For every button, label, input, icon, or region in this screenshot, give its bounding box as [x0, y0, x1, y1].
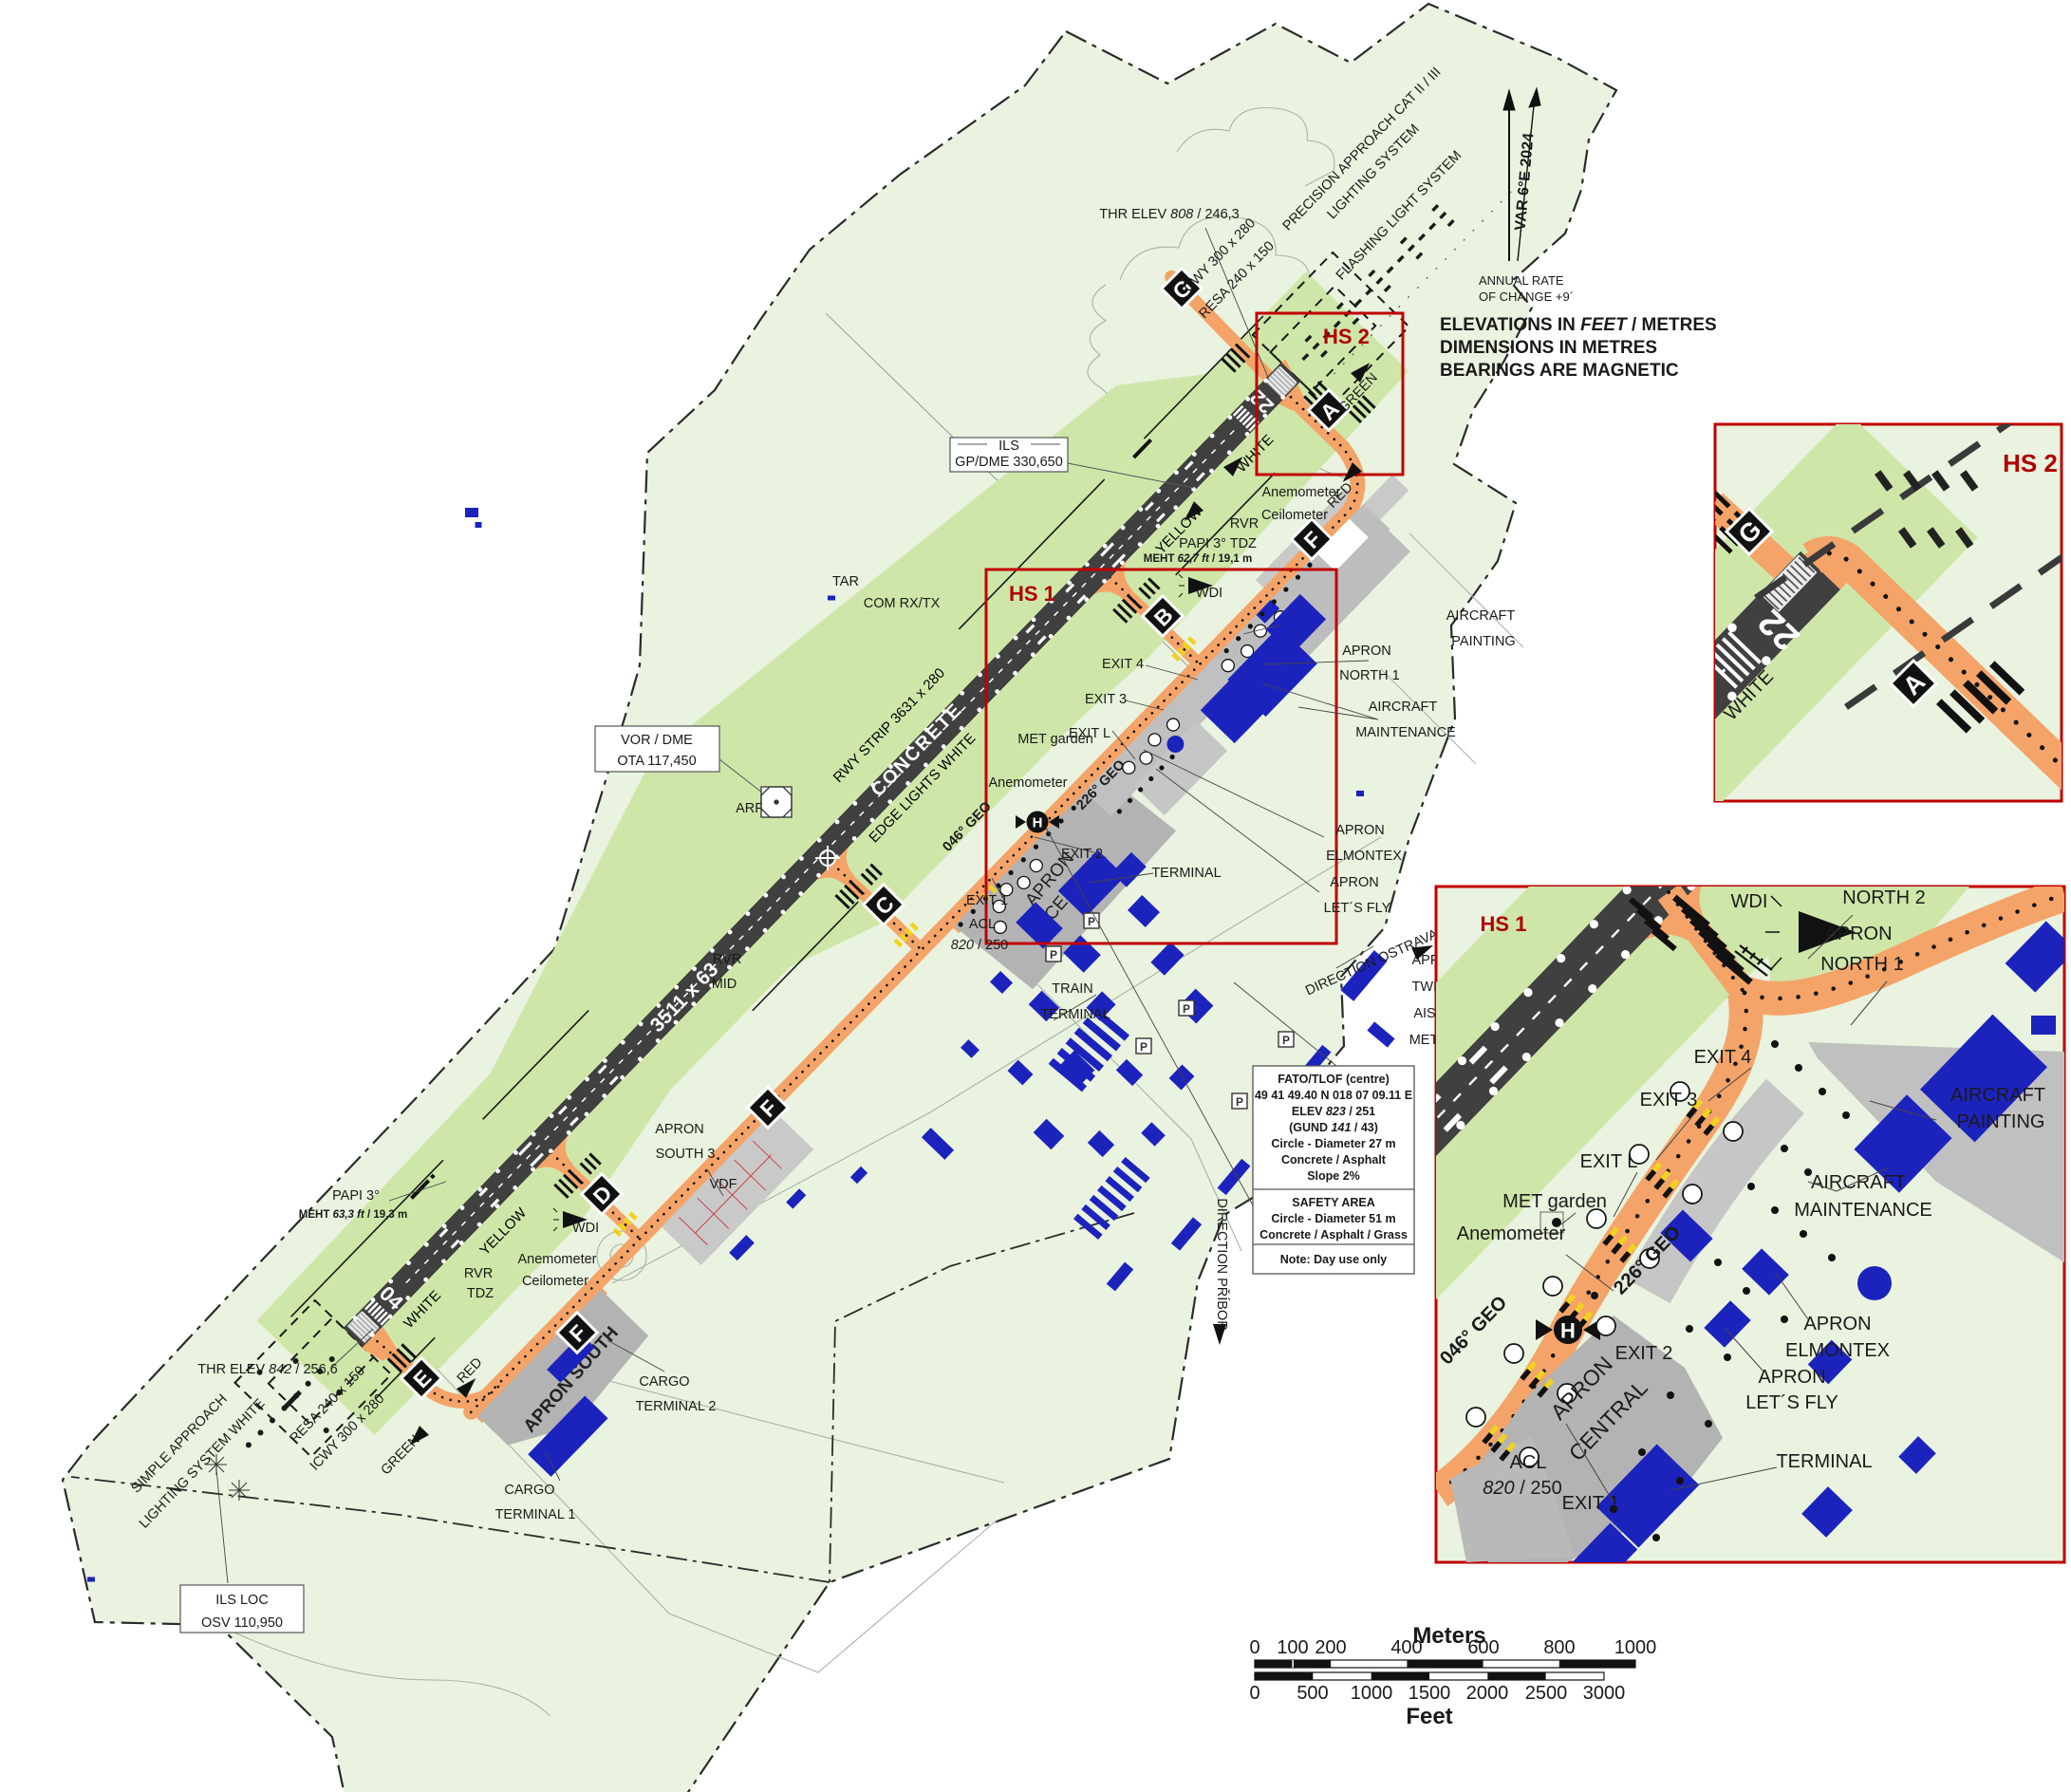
- svg-text:820 / 250: 820 / 250: [951, 938, 1008, 953]
- svg-text:APRON: APRON: [655, 1122, 704, 1137]
- svg-text:Ceilometer: Ceilometer: [1261, 508, 1328, 523]
- svg-text:MEHT 63,3 ft / 19,3 m: MEHT 63,3 ft / 19,3 m: [299, 1209, 407, 1221]
- svg-text:P: P: [1088, 915, 1095, 928]
- svg-text:LET´S FLY: LET´S FLY: [1745, 1392, 1838, 1413]
- svg-text:P: P: [1140, 1040, 1147, 1054]
- svg-text:MAINTENANCE: MAINTENANCE: [1355, 725, 1456, 740]
- svg-text:(GUND 141 / 43): (GUND 141 / 43): [1289, 1121, 1378, 1134]
- svg-text:RVR: RVR: [464, 1266, 493, 1281]
- svg-text:PAPI 3°: PAPI 3°: [332, 1188, 380, 1204]
- svg-text:600: 600: [1467, 1637, 1499, 1658]
- svg-text:TERMINAL: TERMINAL: [1151, 866, 1221, 881]
- svg-text:OTA 117,450: OTA 117,450: [617, 754, 696, 769]
- svg-text:0: 0: [1249, 1683, 1259, 1704]
- svg-text:MAINTENANCE: MAINTENANCE: [1794, 1200, 1932, 1221]
- svg-text:Feet: Feet: [1406, 1704, 1452, 1729]
- svg-text:EXIT 1: EXIT 1: [966, 893, 1008, 908]
- svg-text:TAR: TAR: [832, 574, 859, 589]
- svg-text:WDI: WDI: [1731, 891, 1768, 912]
- svg-text:BEARINGS ARE MAGNETIC: BEARINGS ARE MAGNETIC: [1440, 361, 1679, 381]
- svg-text:CARGO: CARGO: [639, 1374, 689, 1390]
- svg-text:MET garden: MET garden: [1502, 1191, 1607, 1212]
- svg-text:H: H: [1560, 1319, 1576, 1343]
- svg-text:TERMINAL: TERMINAL: [1040, 1007, 1110, 1022]
- svg-text:THR ELEV 842 / 256,6: THR ELEV 842 / 256,6: [197, 1362, 338, 1377]
- svg-text:49 41 49.40 N 018 07 09.11 E: 49 41 49.40 N 018 07 09.11 E: [1255, 1089, 1412, 1102]
- svg-text:APRON: APRON: [1335, 823, 1385, 838]
- svg-text:HS 1: HS 1: [1481, 912, 1527, 936]
- svg-text:Anemometer: Anemometer: [1457, 1223, 1566, 1244]
- svg-text:PAINTING: PAINTING: [1451, 634, 1515, 649]
- svg-text:RVR: RVR: [713, 952, 741, 967]
- svg-text:TERMINAL 2: TERMINAL 2: [636, 1399, 717, 1414]
- svg-text:AIRCRAFT: AIRCRAFT: [1369, 700, 1438, 715]
- svg-text:DIMENSIONS IN METRES: DIMENSIONS IN METRES: [1440, 338, 1657, 358]
- svg-text:APRON: APRON: [1330, 875, 1379, 890]
- svg-text:0: 0: [1249, 1637, 1259, 1658]
- svg-text:MET garden: MET garden: [1017, 732, 1093, 747]
- svg-text:Note: Day use only: Note: Day use only: [1280, 1253, 1388, 1266]
- svg-text:EXIT 2: EXIT 2: [1061, 847, 1103, 862]
- svg-text:HS 2: HS 2: [1323, 325, 1370, 348]
- svg-text:THR ELEV 808 / 246,3: THR ELEV 808 / 246,3: [1099, 207, 1240, 222]
- svg-text:OF CHANGE +9´: OF CHANGE +9´: [1479, 289, 1574, 304]
- svg-text:Anemometer: Anemometer: [988, 775, 1067, 791]
- svg-text:AIRCRAFT: AIRCRAFT: [1446, 608, 1516, 624]
- svg-text:2000: 2000: [1466, 1683, 1509, 1704]
- svg-text:EXIT 4: EXIT 4: [1102, 657, 1144, 672]
- svg-text:HS 2: HS 2: [2003, 449, 2058, 477]
- svg-text:Circle - Diameter 51 m: Circle - Diameter 51 m: [1271, 1212, 1395, 1225]
- svg-text:3000: 3000: [1583, 1683, 1626, 1704]
- svg-text:APRON: APRON: [1824, 924, 1892, 944]
- svg-text:100: 100: [1277, 1637, 1308, 1658]
- svg-text:VOR / DME: VOR / DME: [621, 733, 693, 748]
- svg-text:1500: 1500: [1409, 1683, 1451, 1704]
- svg-text:DIRECTION PŘÍBOR: DIRECTION PŘÍBOR: [1214, 1198, 1230, 1330]
- svg-text:FATO/TLOF (centre): FATO/TLOF (centre): [1278, 1073, 1390, 1086]
- svg-text:EXIT 2: EXIT 2: [1615, 1343, 1673, 1364]
- svg-text:Slope 2%: Slope 2%: [1307, 1169, 1360, 1183]
- svg-text:AIRCRAFT: AIRCRAFT: [1811, 1172, 1906, 1193]
- svg-text:SOUTH 3: SOUTH 3: [656, 1147, 716, 1162]
- svg-text:P: P: [1050, 948, 1057, 961]
- svg-text:P: P: [1236, 1095, 1243, 1109]
- svg-text:MEHT 62,7 ft / 19,1 m: MEHT 62,7 ft / 19,1 m: [1144, 553, 1252, 565]
- svg-text:NORTH 1: NORTH 1: [1820, 954, 1903, 975]
- svg-text:ELEV 823 / 251: ELEV 823 / 251: [1292, 1105, 1375, 1118]
- svg-text:APRON: APRON: [1803, 1314, 1871, 1335]
- svg-text:HS 1: HS 1: [1009, 582, 1055, 606]
- svg-text:MET: MET: [1409, 1033, 1439, 1048]
- svg-text:Ceilometer: Ceilometer: [522, 1274, 588, 1289]
- svg-text:ELMONTEX: ELMONTEX: [1326, 849, 1402, 864]
- svg-text:800: 800: [1543, 1637, 1575, 1658]
- svg-text:PAINTING: PAINTING: [1957, 1111, 2045, 1132]
- svg-text:Anemometer: Anemometer: [517, 1252, 596, 1267]
- svg-text:P: P: [1282, 1034, 1290, 1047]
- svg-text:ILS: ILS: [998, 439, 1019, 454]
- svg-text:APRON: APRON: [1758, 1367, 1825, 1388]
- svg-text:AIS: AIS: [1413, 1006, 1435, 1021]
- svg-text:ELMONTEX: ELMONTEX: [1785, 1340, 1890, 1361]
- svg-text:EXIT 1: EXIT 1: [1562, 1493, 1620, 1514]
- svg-text:OSV 110,950: OSV 110,950: [201, 1615, 283, 1631]
- svg-text:Circle - Diameter 27 m: Circle - Diameter 27 m: [1271, 1137, 1395, 1150]
- svg-text:VDF: VDF: [710, 1177, 737, 1192]
- svg-text:ACL: ACL: [1510, 1452, 1547, 1473]
- svg-text:AIRCRAFT: AIRCRAFT: [1950, 1085, 2045, 1106]
- svg-text:ACL: ACL: [969, 917, 996, 932]
- svg-text:2500: 2500: [1525, 1683, 1568, 1704]
- svg-text:EXIT 4: EXIT 4: [1694, 1047, 1752, 1068]
- svg-text:APRON: APRON: [1342, 644, 1391, 659]
- svg-text:500: 500: [1297, 1683, 1328, 1704]
- svg-text:RVR: RVR: [1230, 516, 1259, 532]
- svg-text:TRAIN: TRAIN: [1052, 981, 1093, 997]
- svg-text:TERMINAL: TERMINAL: [1776, 1451, 1872, 1472]
- svg-text:1000: 1000: [1614, 1637, 1657, 1658]
- svg-text:COM RX/TX: COM RX/TX: [864, 596, 941, 611]
- svg-text:200: 200: [1315, 1637, 1346, 1658]
- svg-text:H: H: [1033, 815, 1043, 831]
- svg-text:LET´S FLY: LET´S FLY: [1324, 901, 1391, 916]
- svg-text:EXIT L: EXIT L: [1580, 1151, 1638, 1172]
- svg-text:GP/DME 330,650: GP/DME 330,650: [955, 455, 1063, 470]
- svg-text:NORTH 2: NORTH 2: [1842, 887, 1925, 908]
- svg-text:PAPI 3° TDZ: PAPI 3° TDZ: [1179, 536, 1257, 551]
- svg-text:TDZ: TDZ: [467, 1286, 494, 1301]
- svg-text:CARGO: CARGO: [504, 1483, 554, 1498]
- svg-text:ARP: ARP: [736, 801, 764, 816]
- svg-text:EXIT 3: EXIT 3: [1640, 1090, 1698, 1111]
- svg-text:ELEVATIONS IN FEET / METRES: ELEVATIONS IN FEET / METRES: [1440, 315, 1717, 335]
- svg-text:NORTH 1: NORTH 1: [1339, 668, 1399, 683]
- svg-text:Concrete / Asphalt / Grass: Concrete / Asphalt / Grass: [1259, 1228, 1408, 1241]
- svg-text:SAFETY AREA: SAFETY AREA: [1292, 1196, 1375, 1209]
- svg-text:820 / 250: 820 / 250: [1483, 1478, 1561, 1499]
- svg-text:MID: MID: [712, 977, 737, 992]
- svg-text:P: P: [1183, 1002, 1190, 1016]
- svg-text:TERMINAL 1: TERMINAL 1: [495, 1507, 576, 1522]
- svg-text:ANNUAL RATE: ANNUAL RATE: [1479, 273, 1564, 288]
- svg-text:Concrete / Asphalt: Concrete / Asphalt: [1281, 1153, 1387, 1167]
- svg-text:400: 400: [1390, 1637, 1422, 1658]
- svg-text:EXIT 3: EXIT 3: [1085, 692, 1127, 707]
- svg-text:1000: 1000: [1351, 1683, 1393, 1704]
- svg-text:ILS LOC: ILS LOC: [215, 1593, 269, 1608]
